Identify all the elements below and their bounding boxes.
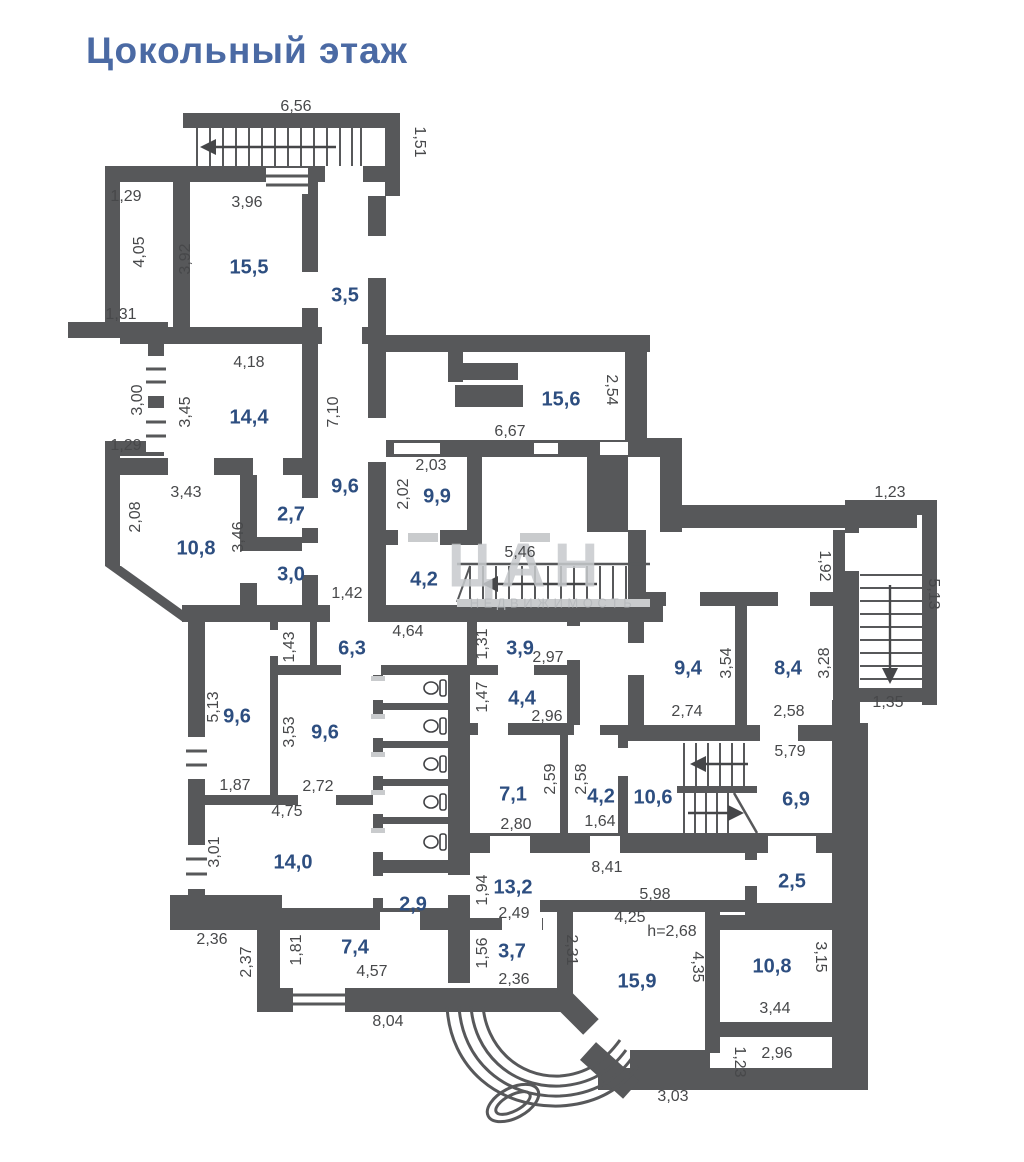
dimension-label: 3,28: [816, 647, 833, 678]
room-area-label: 14,0: [274, 851, 313, 873]
dimension-label: 2,97: [532, 649, 563, 666]
room-area-label: 15,6: [542, 388, 581, 410]
dimension-label: 3,53: [281, 716, 298, 747]
dimension-label: 2,36: [498, 971, 529, 988]
dimension-label: 2,54: [603, 374, 620, 405]
dimension-label: 2,58: [773, 703, 804, 720]
dimension-label: 2,02: [395, 478, 412, 509]
dimension-label: 1,29: [110, 188, 141, 205]
dimension-label: 1,35: [872, 694, 903, 711]
room-area-label: 2,5: [778, 870, 806, 892]
dimension-label: 2,49: [498, 905, 529, 922]
dimension-label: 4,35: [689, 951, 706, 982]
dimension-label: 7,10: [325, 396, 342, 427]
dimension-label: 3,43: [170, 484, 201, 501]
room-area-label: 15,9: [618, 970, 657, 992]
dimension-label: 5,98: [639, 886, 670, 903]
dimension-label: 2,96: [531, 708, 562, 725]
dimension-label: 6,56: [280, 98, 311, 115]
room-area-label: 9,9: [423, 485, 451, 507]
dimension-label: 1,87: [219, 777, 250, 794]
room-area-label: 9,6: [331, 475, 359, 497]
dimension-label: 3,45: [177, 396, 194, 427]
dimension-label: 2,96: [761, 1045, 792, 1062]
dimension-label: 5,46: [504, 544, 535, 561]
dimension-label: 1,64: [584, 813, 615, 830]
room-area-label: 2,9: [399, 893, 427, 915]
dimension-label: 2,31: [563, 934, 580, 965]
dimension-label: 1,23: [731, 1046, 748, 1077]
dimension-label: 8,41: [591, 859, 622, 876]
room-area-label: 6,9: [782, 788, 810, 810]
dimension-label: 2,80: [500, 816, 531, 833]
dimension-label: h=2,68: [647, 923, 696, 940]
dimension-label: 1,42: [331, 585, 362, 602]
dimension-label: 2,74: [671, 703, 702, 720]
stairs-right-outer: [860, 575, 922, 684]
dimension-label: 2,58: [573, 763, 590, 794]
dimension-label: 1,51: [411, 126, 428, 157]
dimension-label: 4,05: [131, 236, 148, 267]
room-area-label: 10,6: [634, 786, 673, 808]
dimension-label: 6,67: [494, 423, 525, 440]
room-area-label: 9,6: [223, 705, 251, 727]
dimension-label: 2,03: [415, 457, 446, 474]
stairs-double-flight: [677, 743, 757, 833]
room-area-label: 7,4: [341, 936, 370, 958]
dimension-label: 1,23: [874, 484, 905, 501]
dimension-label: 4,64: [392, 623, 423, 640]
floor-plan-drawing: ЦАН НЕДВИЖИМОСТЬ 15,53,514,415,69,99,62,…: [0, 0, 1024, 1162]
stairs-top: [197, 128, 361, 166]
room-area-label: 4,4: [508, 687, 537, 709]
dimension-label: 3,01: [206, 836, 223, 867]
dimension-label: 5,79: [774, 743, 805, 760]
floor-plan-page: Цокольный этаж: [0, 0, 1024, 1162]
dimension-label: 3,03: [657, 1088, 688, 1105]
room-area-label: 6,3: [338, 637, 366, 659]
dimension-label: 1,81: [288, 934, 305, 965]
room-area-label: 7,1: [499, 783, 527, 805]
watermark: ЦАН НЕДВИЖИМОСТЬ: [448, 531, 637, 610]
dimension-label: 1,31: [474, 628, 491, 659]
dimension-label: 3,00: [129, 384, 146, 415]
dimension-label: 3,15: [812, 941, 829, 972]
dimension-label: 4,57: [356, 963, 387, 980]
room-area-label: 14,4: [230, 406, 270, 428]
dimension-label: 5,13: [925, 578, 942, 609]
watermark-subtitle: НЕДВИЖИМОСТЬ: [470, 595, 637, 610]
room-area-label: 9,4: [674, 657, 703, 679]
room-area-label: 10,8: [177, 537, 216, 559]
dimension-label: 8,04: [372, 1013, 403, 1030]
dimension-label: 3,92: [177, 243, 194, 274]
dimension-label: 2,37: [238, 946, 255, 977]
dimension-label: 2,08: [127, 501, 144, 532]
dimension-label: 1,94: [474, 874, 491, 905]
dimension-label: 2,59: [542, 763, 559, 794]
dimension-label: 3,96: [231, 194, 262, 211]
room-area-label: 13,2: [494, 876, 533, 898]
entrance-curved-stair: [447, 1006, 638, 1129]
room-area-label: 3,0: [277, 563, 305, 585]
room-area-label: 4,2: [587, 785, 615, 807]
dimension-label: 1,31: [105, 306, 136, 323]
room-area-label: 3,9: [506, 637, 534, 659]
dimension-label: 1,92: [816, 550, 833, 581]
room-area-label: 3,7: [498, 940, 526, 962]
dimension-label: 4,25: [614, 909, 645, 926]
watermark-logo: ЦАН: [448, 531, 607, 600]
dimension-label: 2,36: [196, 931, 227, 948]
dimension-label: 4,18: [233, 354, 264, 371]
room-area-label: 4,2: [410, 568, 438, 590]
dimension-label: 1,29: [110, 437, 141, 454]
dimension-label: 4,75: [271, 803, 302, 820]
dimension-label: 5,13: [205, 691, 222, 722]
room-area-label: 8,4: [774, 657, 803, 679]
dimension-label: 2,72: [302, 778, 333, 795]
dimension-label: 3,44: [759, 1000, 790, 1017]
room-area-label: 3,5: [331, 284, 359, 306]
room-area-label: 9,6: [311, 721, 339, 743]
room-area-label: 2,7: [277, 503, 305, 525]
dimension-label: 1,47: [474, 681, 491, 712]
dimension-label: 1,43: [281, 631, 298, 662]
dimension-label: 3,54: [718, 647, 735, 678]
dimension-label: 3,46: [230, 521, 247, 552]
room-area-label: 15,5: [230, 256, 269, 278]
dimension-label: 1,56: [474, 937, 491, 968]
room-area-label: 10,8: [753, 955, 792, 977]
